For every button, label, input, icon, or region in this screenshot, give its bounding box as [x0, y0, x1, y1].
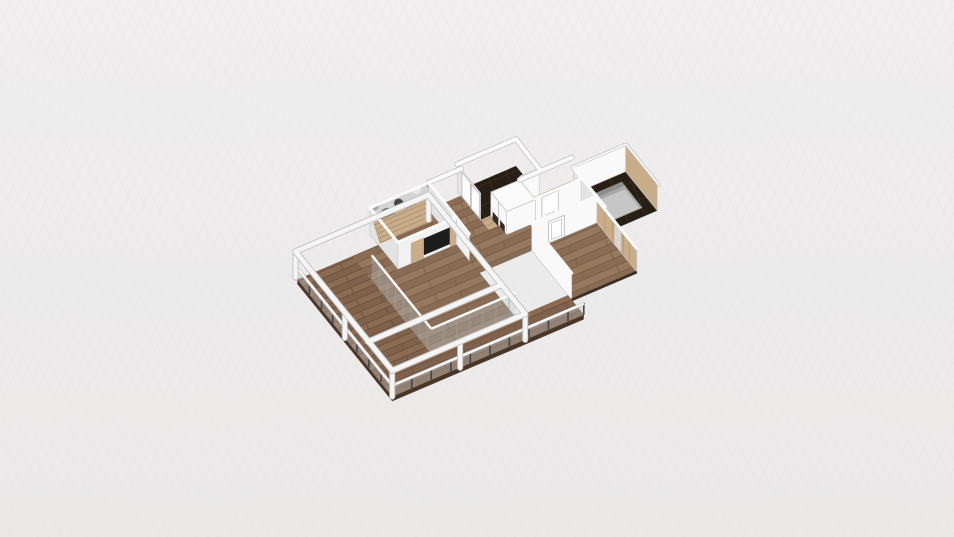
floorplan-3d-viewport[interactable]: [0, 0, 954, 537]
